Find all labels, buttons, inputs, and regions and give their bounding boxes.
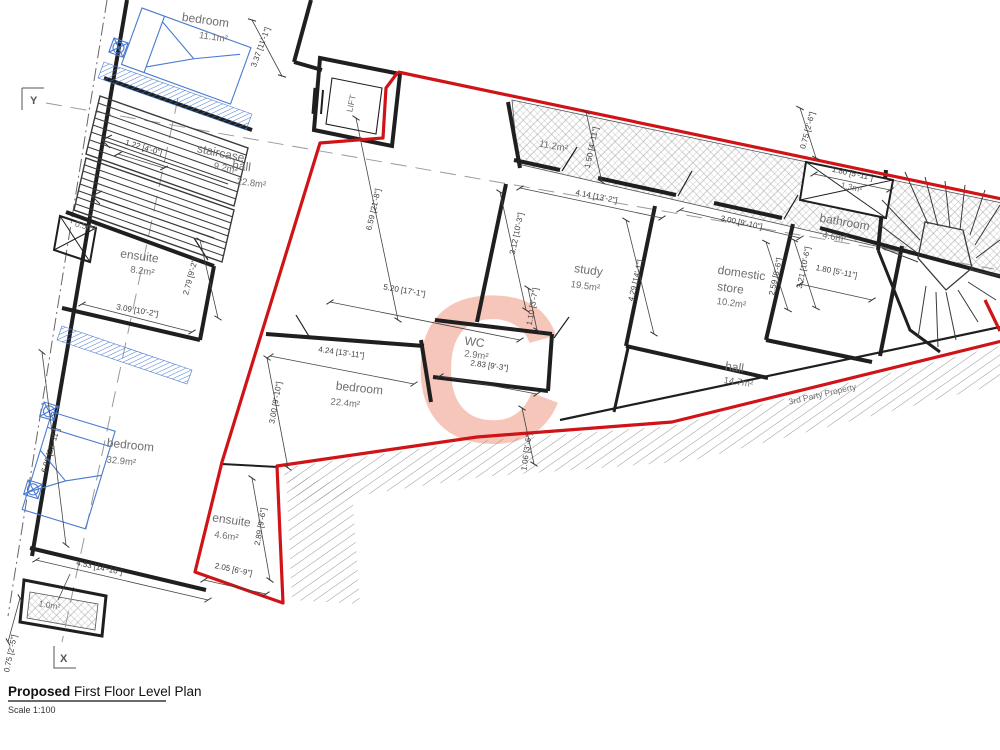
drawing-title-rest: First Floor Level Plan (70, 684, 201, 699)
dim-label: 4.29 [14'-1"] (626, 259, 644, 303)
void-hatch-11-2 (512, 100, 1000, 275)
room-label-bedroom-3: bedroom (335, 379, 384, 398)
room-label-bedroom-1: bedroom (181, 10, 230, 30)
boundary-right (985, 300, 1000, 331)
room-area-ensuite-1: 8.2m² (130, 264, 156, 278)
dim-label: 3.12 [10'-3"] (508, 212, 526, 256)
y-axis-label: Y (30, 95, 38, 107)
room-area-hall-1: 22.8m² (236, 176, 267, 191)
room-label-ensuite-2: ensuite (211, 510, 252, 529)
dim-label: 6.99 [22'-11"] (40, 427, 62, 474)
dim-label: 0.75 [2'-5"] (2, 634, 19, 673)
dim-label: 1.80 [5'-11"] (815, 263, 858, 280)
dim-label: 2.89 [9'-6"] (253, 507, 268, 546)
bed-large (22, 412, 115, 529)
room-label-bedroom-2: bedroom (106, 436, 155, 455)
room-label-hall-1: hall (231, 158, 251, 174)
dim-label: 3.21 [10'-6"] (795, 246, 813, 290)
room-area-bedroom-1: 11.1m² (198, 30, 228, 45)
room-area-bedroom-3: 22.4m² (330, 396, 361, 410)
floor-plan-canvas: C Y X (0, 0, 1000, 750)
lift-shaft (314, 58, 400, 146)
dim-label: 3.09 [10'-2"] (116, 302, 160, 318)
title-block: Proposed First Floor Level Plan Scale 1:… (8, 684, 202, 715)
dim-label: 0.75 [2'-6"] (798, 111, 817, 150)
x-axis-label: X (60, 653, 68, 665)
dim-label: 2.05 [6'-9"] (214, 561, 253, 578)
drawing-title-bold: Proposed (8, 684, 70, 699)
room-label-ensuite-1: ensuite (119, 246, 160, 265)
room-area-study: 19.5m² (570, 279, 601, 294)
dim-label: 4.14 [13'-2"] (575, 188, 619, 205)
dim-label: 4.24 [13'-11"] (318, 345, 365, 360)
drawing-title: Proposed First Floor Level Plan (8, 684, 202, 699)
room-area-domestic-store: 10.2m² (716, 296, 747, 311)
dim-label: 2.79 [9'-2"] (181, 257, 200, 296)
room-area-bedroom-2: 32.9m² (106, 454, 137, 468)
dim-label: 3.00 [9'-10"] (267, 381, 283, 425)
property-dashdot-line (8, 0, 107, 616)
room-label-domestic-store-2: store (716, 279, 745, 297)
room-label-lift: LIFT (344, 94, 357, 113)
third-party-hatch-side (286, 473, 360, 604)
room-label-study: study (573, 261, 603, 279)
room-area-ensuite-2: 4.6m² (214, 529, 240, 543)
drawing-scale: Scale 1:100 (8, 705, 56, 715)
dim-label: 6.59 [21'-8"] (364, 188, 382, 232)
room-label-hall-2: hall (724, 359, 744, 375)
dim-label: 4.53 [14'-10"] (76, 558, 124, 577)
room-area-hall-2: 14.7m² (723, 375, 754, 390)
dim-label: 3.37 [11'-1"] (249, 26, 272, 69)
